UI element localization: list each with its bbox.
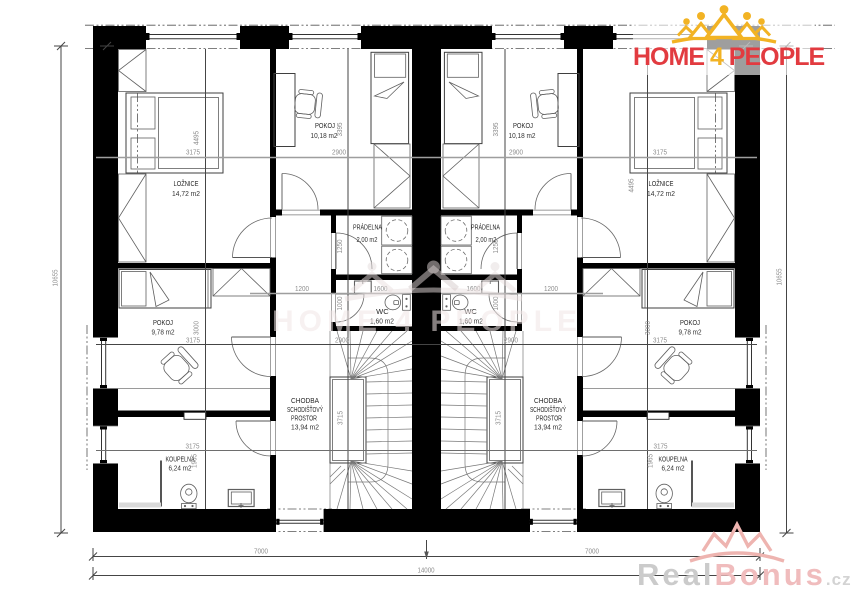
svg-text:3715: 3715 <box>496 411 503 425</box>
svg-text:3175: 3175 <box>653 150 667 157</box>
svg-text:LOŽNICE: LOŽNICE <box>649 179 674 188</box>
svg-text:2,00 m2: 2,00 m2 <box>357 237 378 244</box>
svg-text:3175: 3175 <box>653 338 667 345</box>
svg-text:1250: 1250 <box>493 239 500 253</box>
svg-text:13,94 m2: 13,94 m2 <box>534 425 562 432</box>
svg-text:3175: 3175 <box>186 150 200 157</box>
svg-text:10655: 10655 <box>777 268 784 285</box>
svg-text:1200: 1200 <box>544 286 558 293</box>
svg-text:1200: 1200 <box>295 286 309 293</box>
svg-text:POKOJ: POKOJ <box>513 121 533 130</box>
svg-text:3175: 3175 <box>186 444 200 451</box>
svg-text:3175: 3175 <box>654 444 668 451</box>
svg-text:PRÁDELNA: PRÁDELNA <box>353 223 382 232</box>
svg-text:LOŽNICE: LOŽNICE <box>174 179 199 188</box>
svg-text:13,94 m2: 13,94 m2 <box>291 425 319 432</box>
svg-text:PRÁDELNA: PRÁDELNA <box>471 223 500 232</box>
svg-text:1965: 1965 <box>648 454 655 468</box>
svg-text:3000: 3000 <box>194 321 201 335</box>
svg-text:2900: 2900 <box>335 338 349 345</box>
svg-text:3715: 3715 <box>338 411 345 425</box>
svg-text:14000: 14000 <box>418 568 435 575</box>
svg-text:KOUPELNA: KOUPELNA <box>166 455 195 464</box>
svg-text:RealBonus.cz: RealBonus.cz <box>637 557 852 592</box>
svg-text:14,72 m2: 14,72 m2 <box>647 191 675 198</box>
svg-text:10655: 10655 <box>53 269 60 286</box>
svg-text:POKOJ: POKOJ <box>153 318 173 327</box>
svg-text:1965: 1965 <box>192 454 199 468</box>
svg-text:3395: 3395 <box>493 122 500 136</box>
svg-text:PROSTOR: PROSTOR <box>291 414 317 423</box>
svg-text:2900: 2900 <box>509 150 523 157</box>
svg-text:10,18 m2: 10,18 m2 <box>509 133 536 140</box>
svg-text:KOUPELNA: KOUPELNA <box>659 455 688 464</box>
svg-text:CHODBA: CHODBA <box>534 396 562 405</box>
svg-text:2900: 2900 <box>332 150 346 157</box>
svg-text:PROSTOR: PROSTOR <box>536 414 562 423</box>
svg-text:9,78 m2: 9,78 m2 <box>152 330 175 337</box>
svg-text:10,18 m2: 10,18 m2 <box>311 133 338 140</box>
svg-text:POKOJ: POKOJ <box>315 121 335 130</box>
svg-text:CHODBA: CHODBA <box>291 396 319 405</box>
svg-text:3000: 3000 <box>645 321 652 335</box>
svg-text:HOME 4 PEOPLE: HOME 4 PEOPLE <box>633 43 825 71</box>
svg-text:3175: 3175 <box>186 338 200 345</box>
svg-text:7000: 7000 <box>585 549 599 556</box>
svg-text:6,24 m2: 6,24 m2 <box>169 466 192 473</box>
svg-text:HOME 4 PEOPLE: HOME 4 PEOPLE <box>272 305 582 338</box>
svg-text:7000: 7000 <box>254 549 268 556</box>
svg-text:POKOJ: POKOJ <box>680 318 700 327</box>
svg-text:4495: 4495 <box>194 131 201 145</box>
svg-text:14,72 m2: 14,72 m2 <box>172 191 200 198</box>
svg-text:4495: 4495 <box>629 178 636 192</box>
svg-text:2900: 2900 <box>504 338 518 345</box>
svg-text:6,24 m2: 6,24 m2 <box>662 466 685 473</box>
svg-text:1250: 1250 <box>337 239 344 253</box>
svg-text:9,78 m2: 9,78 m2 <box>679 330 702 337</box>
svg-text:3395: 3395 <box>337 122 344 136</box>
